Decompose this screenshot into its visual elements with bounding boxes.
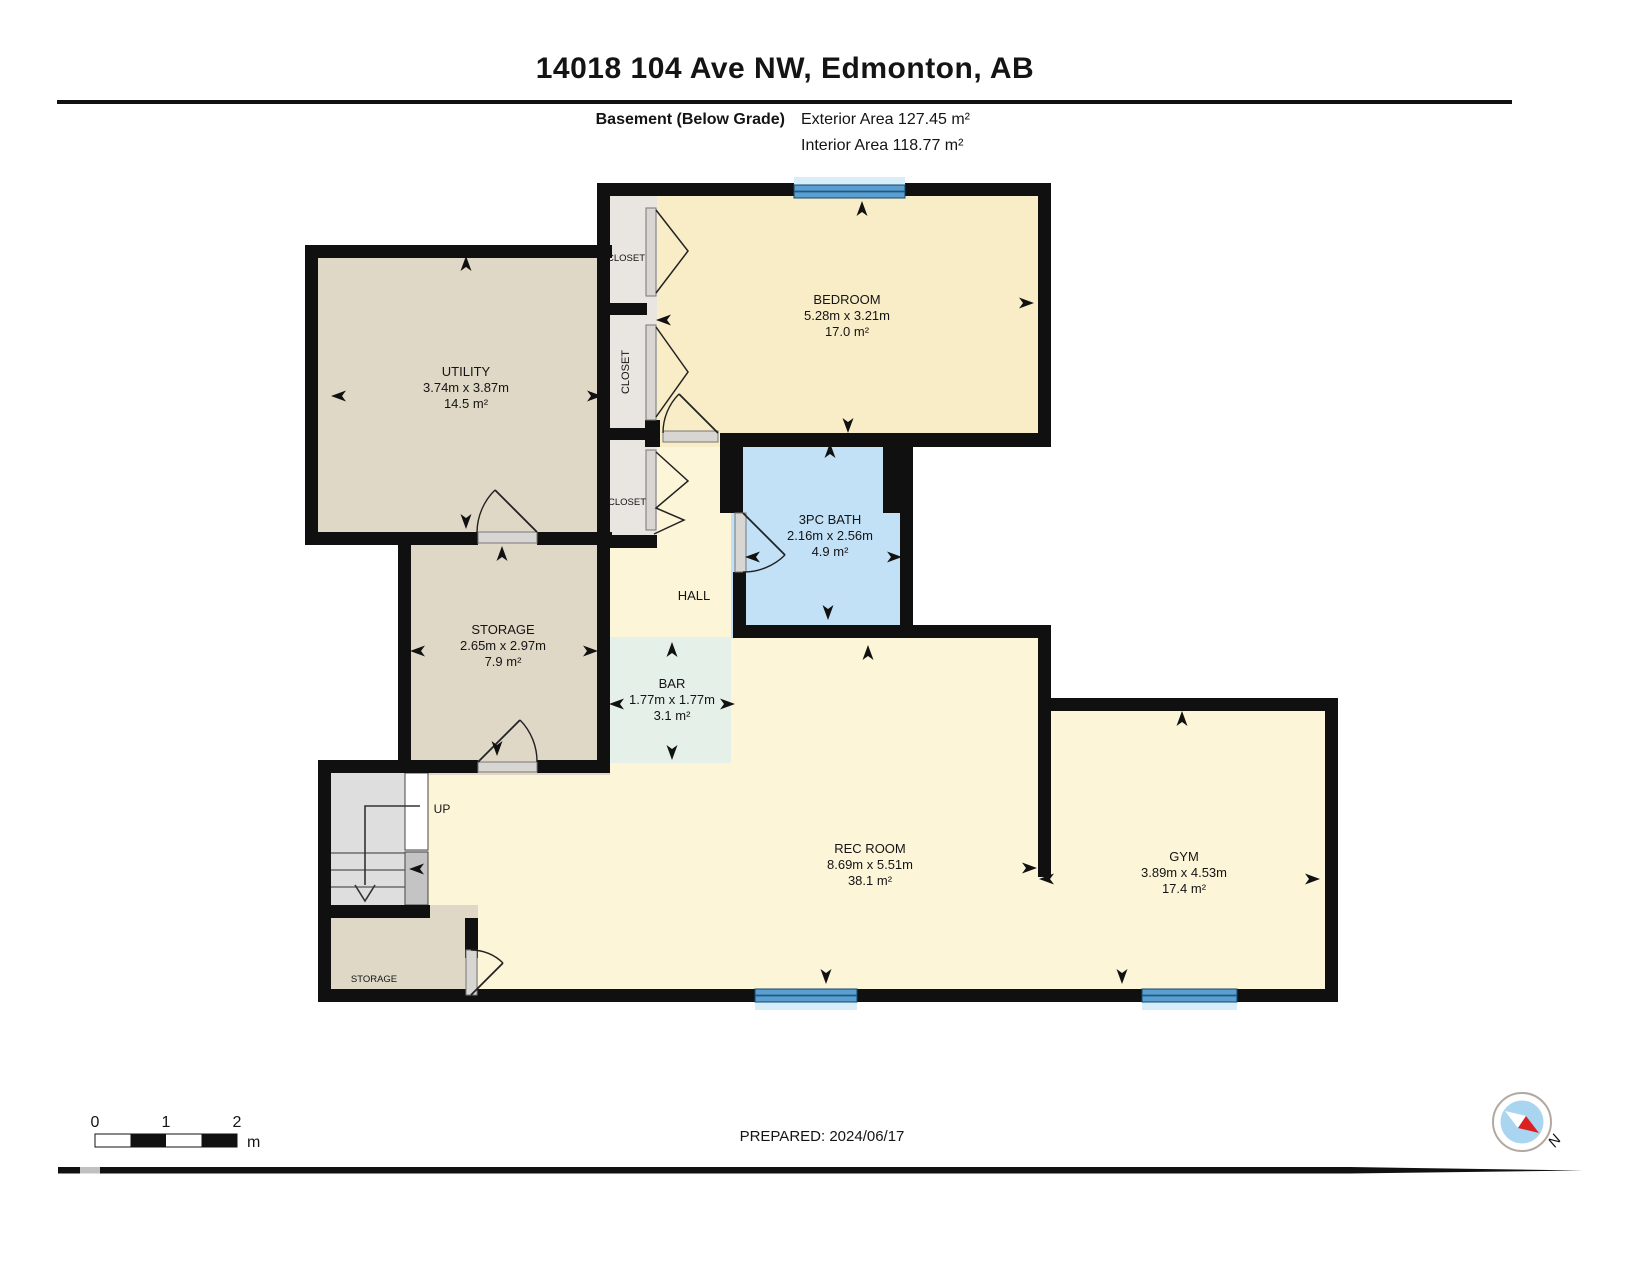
- room-label-text: GYM: [1169, 849, 1199, 864]
- floorplan-page: 14018 104 Ave NW, Edmonton, AB Basement …: [0, 0, 1650, 1275]
- wall: [398, 545, 411, 773]
- stair-landing: [405, 773, 428, 850]
- scale-unit-label: m: [247, 1134, 260, 1151]
- door-threshold: [663, 431, 718, 442]
- window-glow: [794, 177, 905, 185]
- scale-tick-label: 2: [233, 1114, 242, 1131]
- footer-divider: [58, 1167, 1583, 1174]
- scale-bar-segment: [202, 1134, 238, 1147]
- label-closet-3: CLOSET: [608, 497, 646, 508]
- wall: [318, 760, 478, 773]
- room-label-text: BAR: [659, 676, 686, 691]
- room-label-text: 17.4 m²: [1162, 881, 1207, 896]
- wall: [597, 428, 647, 440]
- wall: [1038, 625, 1051, 877]
- wall: [645, 420, 660, 447]
- room-label-text: 8.69m x 5.51m: [827, 857, 913, 872]
- room-label-text: 2.65m x 2.97m: [460, 638, 546, 653]
- wall: [597, 183, 794, 196]
- wall: [597, 303, 647, 315]
- room-label-text: 3PC BATH: [799, 512, 862, 527]
- wall: [1038, 183, 1051, 447]
- room-label-text: 3.1 m²: [654, 708, 692, 723]
- room-label-text: 3.74m x 3.87m: [423, 380, 509, 395]
- label-storage-2: STORAGE: [351, 974, 397, 985]
- door-threshold: [735, 513, 746, 572]
- stair-rail: [405, 852, 428, 905]
- label-closet-1: CLOSET: [607, 253, 645, 264]
- wall: [318, 760, 331, 1002]
- utility-floor: [305, 245, 612, 545]
- footer-divider-fade: [80, 1167, 100, 1174]
- room-label-text: 4.9 m²: [812, 544, 850, 559]
- wall: [733, 625, 1051, 638]
- wall: [305, 245, 612, 258]
- storage2-floor: [318, 905, 478, 1002]
- wall: [305, 532, 478, 545]
- door-threshold: [646, 325, 656, 420]
- room-label-text: REC ROOM: [834, 841, 906, 856]
- wall: [305, 245, 318, 545]
- wall: [597, 545, 610, 770]
- room-label-text: BEDROOM: [813, 292, 880, 307]
- wall: [720, 433, 743, 513]
- window-glow: [1142, 1002, 1237, 1010]
- scale-tick-label: 1: [162, 1114, 171, 1131]
- wall: [1325, 698, 1338, 1002]
- room-label-text: 17.0 m²: [825, 324, 870, 339]
- window-glow: [755, 1002, 857, 1010]
- door-threshold: [646, 450, 656, 530]
- room-label-text: 14.5 m²: [444, 396, 489, 411]
- exterior-notch: [913, 443, 1051, 625]
- room-label-text: UTILITY: [442, 364, 491, 379]
- exterior-notch: [1051, 612, 1338, 698]
- door-threshold: [478, 532, 537, 543]
- wall: [905, 183, 1051, 196]
- door-threshold: [646, 208, 656, 296]
- room-label-text: 5.28m x 3.21m: [804, 308, 890, 323]
- room-label-text: 38.1 m²: [848, 873, 893, 888]
- wall: [537, 760, 610, 773]
- scale-tick-label: 0: [91, 1114, 100, 1131]
- wall: [900, 433, 913, 638]
- label-hall: HALL: [678, 588, 711, 603]
- wall: [318, 905, 430, 918]
- room-label-text: 2.16m x 2.56m: [787, 528, 873, 543]
- label-closet-2: CLOSET: [620, 350, 632, 394]
- door-threshold: [478, 762, 537, 772]
- wall: [1038, 698, 1338, 711]
- floor-plan-canvas: UTILITY3.74m x 3.87m14.5 m²BEDROOM5.28m …: [0, 0, 1650, 1275]
- wall: [597, 183, 610, 548]
- room-label-text: STORAGE: [471, 622, 535, 637]
- room-label-text: 3.89m x 4.53m: [1141, 865, 1227, 880]
- room-label-text: 1.77m x 1.77m: [629, 692, 715, 707]
- label-stairs-up: UP: [434, 802, 451, 816]
- room-label-text: 7.9 m²: [485, 654, 523, 669]
- scale-bar-segment: [131, 1134, 167, 1147]
- door-threshold: [466, 950, 477, 995]
